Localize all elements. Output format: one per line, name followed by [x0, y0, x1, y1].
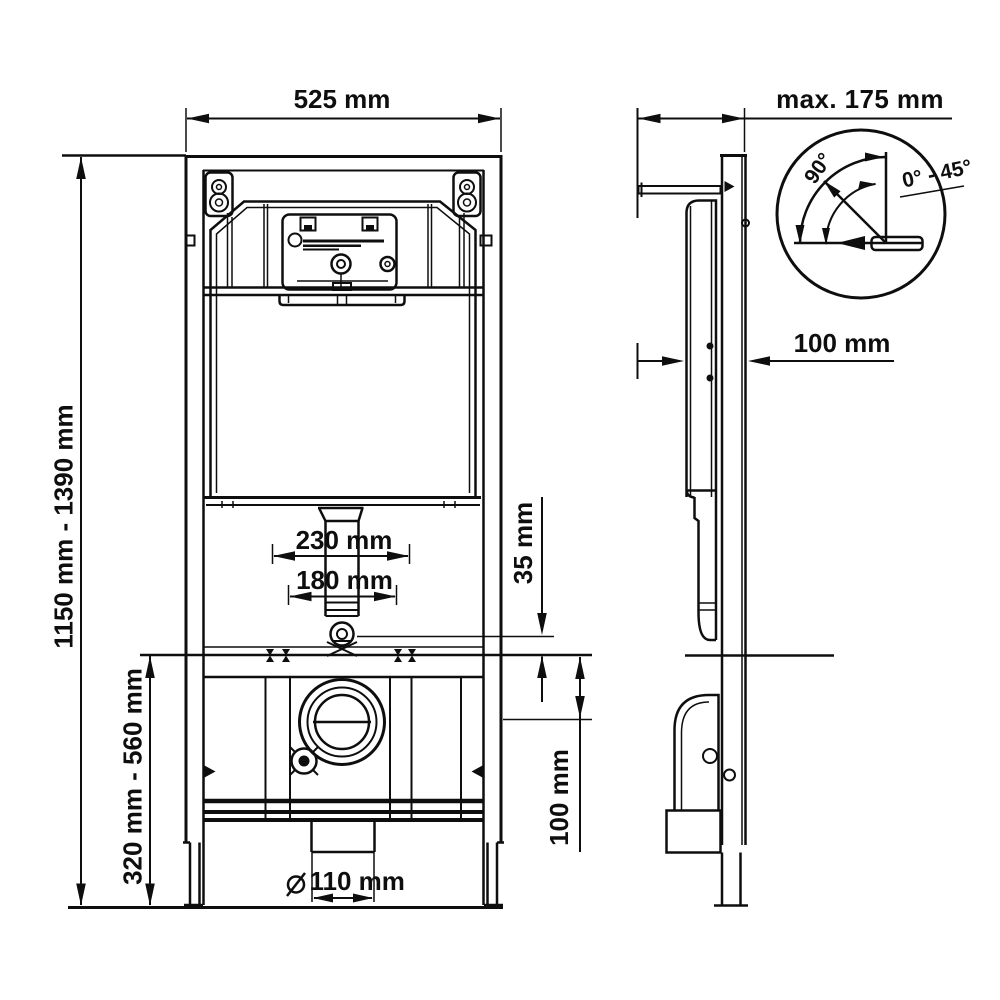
- svg-text:35 mm: 35 mm: [508, 502, 538, 584]
- svg-text:110 mm: 110 mm: [310, 866, 405, 896]
- svg-text:90°: 90°: [800, 149, 837, 188]
- svg-text:230 mm: 230 mm: [296, 525, 393, 555]
- svg-text:max. 175 mm: max. 175 mm: [776, 84, 944, 114]
- svg-text:1150 mm - 1390 mm: 1150 mm - 1390 mm: [49, 404, 79, 648]
- svg-text:525 mm: 525 mm: [294, 84, 391, 114]
- svg-text:180 mm: 180 mm: [296, 565, 393, 595]
- svg-text:0° - 45°: 0° - 45°: [900, 155, 974, 192]
- svg-text:100 mm: 100 mm: [794, 328, 891, 358]
- svg-text:100 mm: 100 mm: [544, 749, 574, 846]
- svg-text:320 mm - 560 mm: 320 mm - 560 mm: [118, 668, 148, 885]
